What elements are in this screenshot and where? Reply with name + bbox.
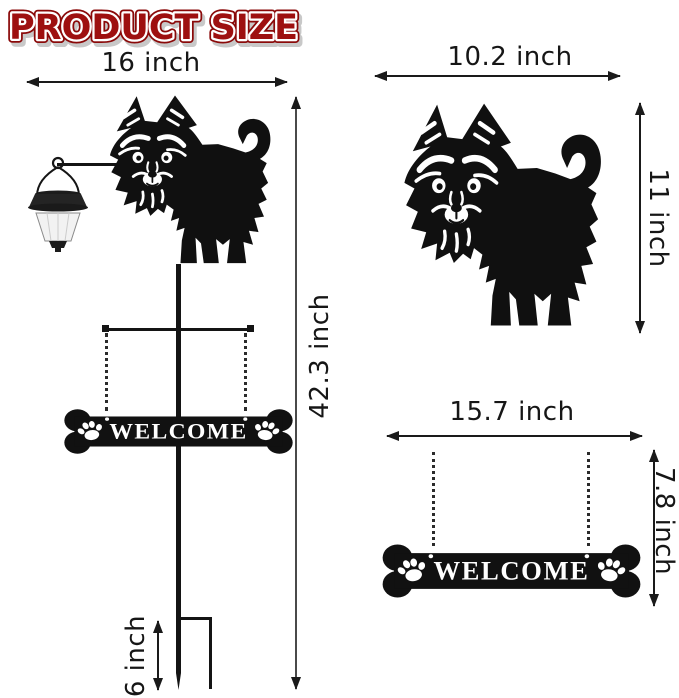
hanging-chain-detail-left bbox=[432, 452, 435, 546]
dim-stake-depth-label: 6 inch bbox=[121, 615, 151, 697]
welcome-sign-detail: WELCOME bbox=[380, 543, 643, 599]
lantern-base bbox=[49, 241, 67, 248]
chain-hole bbox=[429, 554, 434, 558]
hanging-chain-detail-right bbox=[587, 452, 590, 546]
lantern-hook bbox=[53, 158, 63, 168]
dog-silhouette-detail bbox=[391, 99, 609, 332]
dim-dog-width-line bbox=[375, 75, 620, 77]
dog-silhouette-full bbox=[99, 92, 277, 268]
dim-stake-depth-line bbox=[157, 621, 159, 690]
dim-sign-height-label: 7.8 inch bbox=[649, 467, 679, 575]
crossbar-end-cap-right bbox=[247, 325, 254, 332]
dim-dog-height-line bbox=[639, 103, 641, 333]
dim-sign-width-line bbox=[387, 435, 642, 437]
product-size-diagram: PRODUCT SIZE PRODUCT SIZE PRODUCT SIZE P… bbox=[0, 0, 679, 698]
hanging-chain-right bbox=[244, 333, 247, 411]
welcome-sign-full: WELCOME bbox=[62, 408, 295, 455]
hanging-chain-left bbox=[105, 333, 108, 411]
crossbar-end-cap-left bbox=[102, 325, 109, 332]
dim-sign-width-label: 15.7 inch bbox=[449, 397, 574, 427]
title-fill: PRODUCT SIZE bbox=[9, 8, 298, 48]
welcome-text: WELCOME bbox=[109, 420, 247, 445]
dim-dog-width-label: 10.2 inch bbox=[447, 42, 572, 72]
lantern-base-stem bbox=[55, 248, 61, 252]
page-title: PRODUCT SIZE PRODUCT SIZE PRODUCT SIZE P… bbox=[6, 2, 336, 52]
dim-full-height-line bbox=[295, 97, 297, 689]
dim-full-width-label: 16 inch bbox=[101, 48, 200, 78]
chain-hole bbox=[105, 417, 109, 420]
ground-prong-horizontal bbox=[179, 617, 212, 620]
lantern-cap-rim bbox=[28, 204, 88, 212]
ground-prong-vertical bbox=[209, 617, 212, 689]
dim-full-width-line bbox=[27, 81, 287, 83]
welcome-text: WELCOME bbox=[433, 557, 589, 586]
dim-dog-height-label: 11 inch bbox=[643, 168, 673, 267]
dim-full-height-label: 42.3 inch bbox=[305, 293, 335, 418]
solar-lantern bbox=[24, 156, 100, 254]
sign-crossbar bbox=[106, 328, 250, 331]
